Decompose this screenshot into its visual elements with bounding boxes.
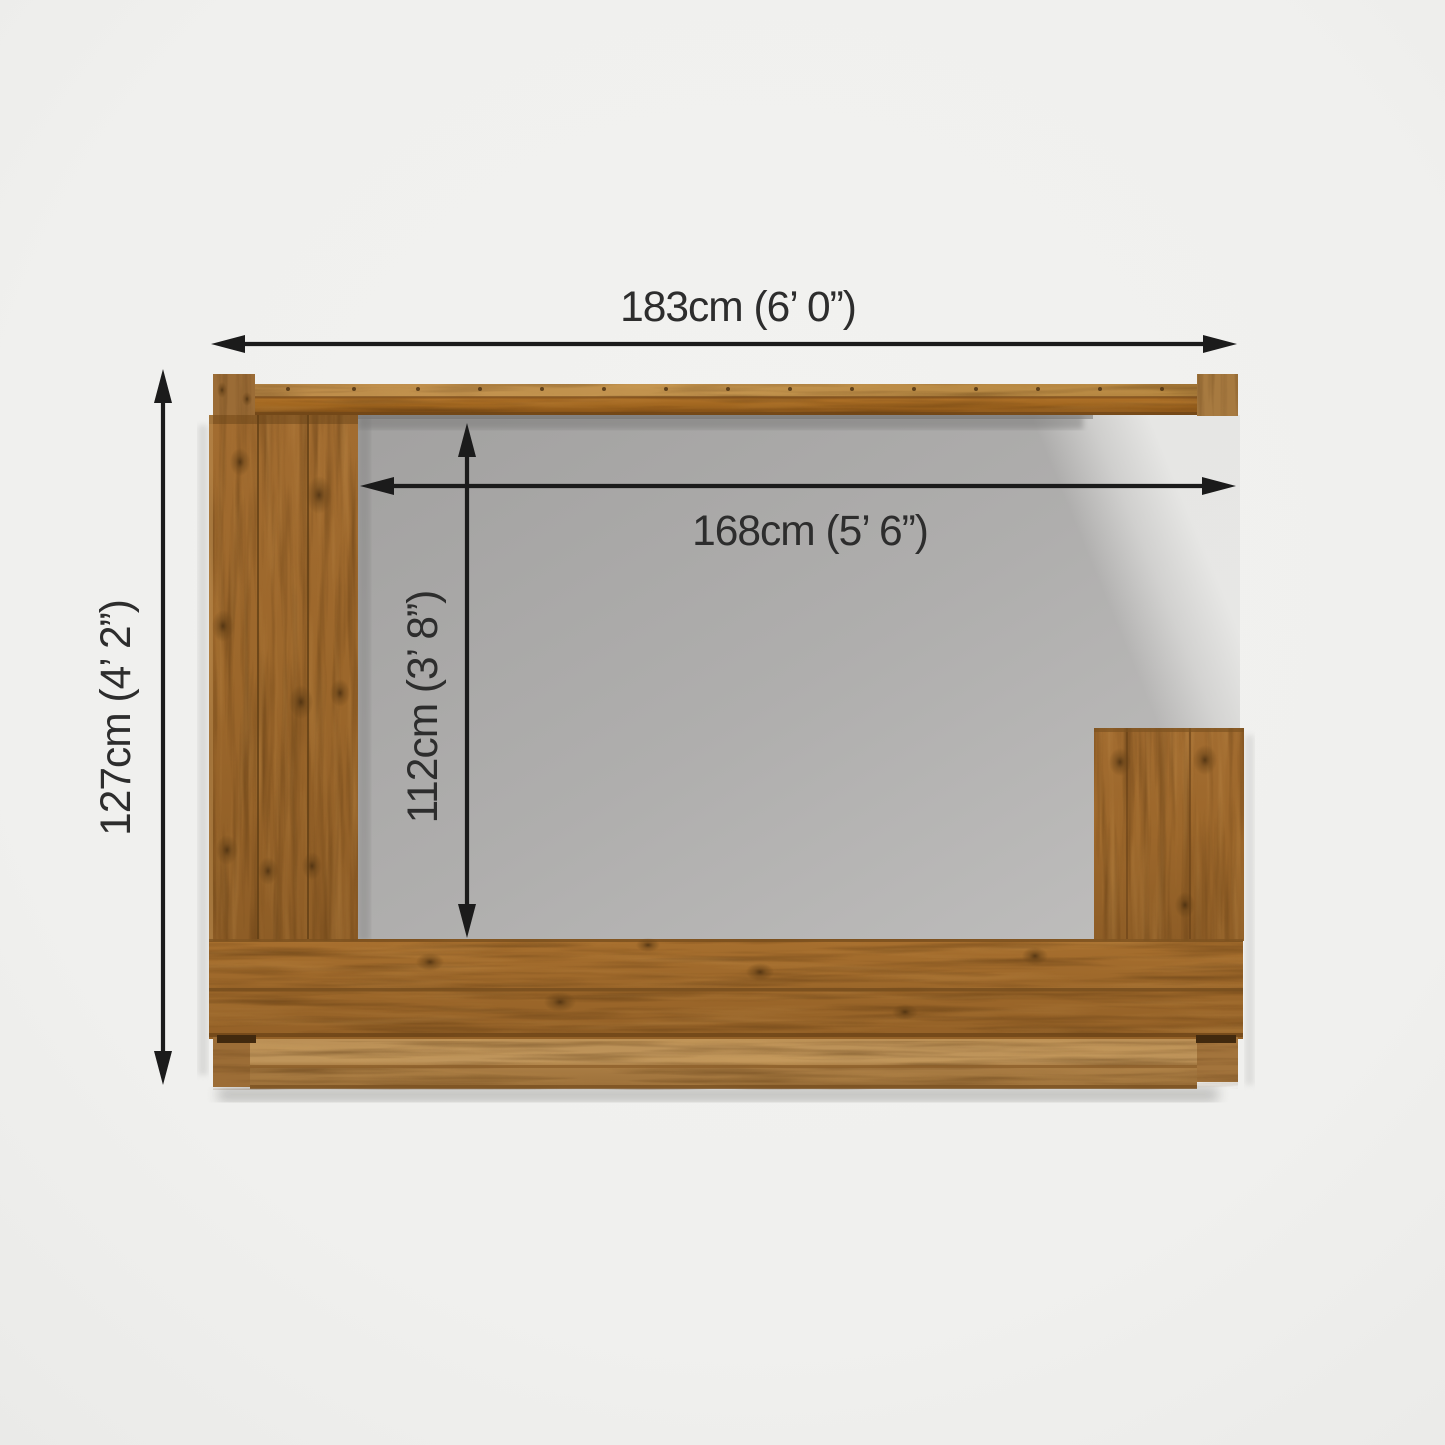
svg-text:127cm (4’ 2”): 127cm (4’ 2”) [93, 600, 140, 836]
svg-text:183cm (6’ 0”): 183cm (6’ 0”) [620, 284, 856, 331]
svg-text:112cm (3’ 8”): 112cm (3’ 8”) [400, 591, 447, 824]
svg-text:168cm (5’ 6”): 168cm (5’ 6”) [692, 508, 928, 555]
